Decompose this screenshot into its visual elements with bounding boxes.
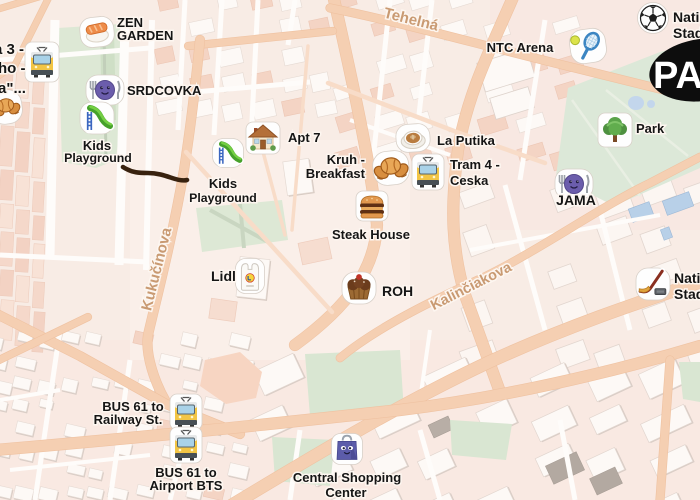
- svg-text:a"...: a"...: [0, 80, 26, 97]
- svg-text:GARDEN: GARDEN: [117, 28, 173, 43]
- svg-text:Stadi: Stadi: [674, 286, 700, 302]
- svg-text:Breakfast: Breakfast: [306, 166, 366, 181]
- svg-text:Natio: Natio: [674, 270, 700, 286]
- svg-text:Steak House: Steak House: [332, 227, 410, 242]
- svg-text:Tram 4 -: Tram 4 -: [450, 157, 500, 172]
- svg-text:Center: Center: [325, 485, 366, 500]
- svg-text:Playground: Playground: [189, 191, 257, 205]
- svg-text:Airport BTS: Airport BTS: [150, 478, 223, 493]
- svg-text:Kruh -: Kruh -: [327, 152, 365, 167]
- svg-text:PA: PA: [653, 55, 700, 97]
- svg-text:Apt 7: Apt 7: [288, 130, 321, 145]
- svg-text:Natio: Natio: [673, 9, 700, 25]
- svg-text:Park: Park: [636, 121, 665, 136]
- svg-text:JAMA: JAMA: [556, 192, 596, 208]
- svg-text:Stadi: Stadi: [673, 25, 700, 41]
- svg-text:Lidl: Lidl: [211, 268, 236, 284]
- svg-text:Railway St.: Railway St.: [94, 412, 163, 427]
- svg-text:Playground: Playground: [64, 151, 132, 165]
- svg-text:Kids: Kids: [209, 176, 237, 191]
- svg-text:NTC Arena: NTC Arena: [487, 40, 554, 55]
- svg-text:La Putika: La Putika: [437, 133, 496, 148]
- svg-text:Central Shopping: Central Shopping: [293, 470, 401, 485]
- svg-text:SRDCOVKA: SRDCOVKA: [127, 83, 202, 98]
- svg-text:a 3 -: a 3 -: [0, 41, 24, 58]
- svg-text:ROH: ROH: [382, 283, 413, 299]
- svg-text:ho -: ho -: [0, 60, 26, 77]
- svg-text:Ceska: Ceska: [450, 173, 489, 188]
